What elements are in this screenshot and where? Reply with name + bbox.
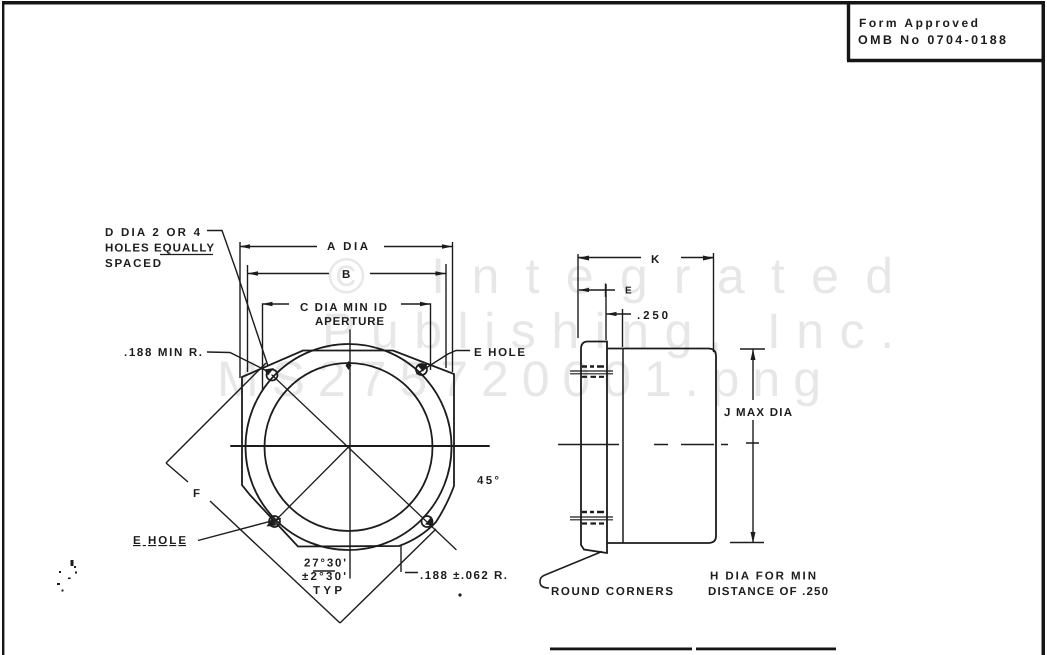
svg-text:B: B	[342, 269, 350, 281]
svg-text:A DIA: A DIA	[327, 241, 368, 253]
svg-text:SPACED: SPACED	[105, 258, 161, 270]
svg-text:© Integrated: © Integrated	[328, 248, 893, 304]
svg-text:27°30': 27°30'	[304, 558, 346, 570]
svg-text:HOLES EQUALLY: HOLES EQUALLY	[105, 243, 214, 255]
svg-text:TYP: TYP	[313, 585, 342, 597]
svg-text:45°: 45°	[477, 475, 499, 487]
svg-text:E HOLE: E HOLE	[133, 535, 186, 547]
svg-text:ROUND CORNERS: ROUND CORNERS	[551, 586, 673, 598]
svg-text:.188 ±.062 R.: .188 ±.062 R.	[420, 570, 507, 582]
svg-text:APERTURE: APERTURE	[315, 316, 384, 328]
svg-text:MS275720001.png: MS275720001.png	[217, 351, 821, 407]
svg-text:.188 MIN R.: .188 MIN R.	[124, 347, 202, 359]
svg-text:K: K	[651, 254, 660, 266]
svg-text:DISTANCE OF .250: DISTANCE OF .250	[708, 586, 828, 598]
svg-text:OMB No 0704-0188: OMB No 0704-0188	[858, 33, 1006, 47]
svg-text:±2°30': ±2°30'	[302, 571, 346, 583]
svg-text:E: E	[625, 286, 632, 297]
svg-text:Form Approved: Form Approved	[859, 16, 978, 30]
svg-text:J MAX DIA: J MAX DIA	[724, 407, 792, 419]
svg-text:H DIA FOR MIN: H DIA FOR MIN	[710, 571, 816, 583]
svg-text:F: F	[193, 488, 200, 500]
svg-text:D DIA 2 OR 4: D DIA 2 OR 4	[105, 227, 201, 239]
svg-text:C DIA MIN ID: C DIA MIN ID	[300, 302, 387, 314]
